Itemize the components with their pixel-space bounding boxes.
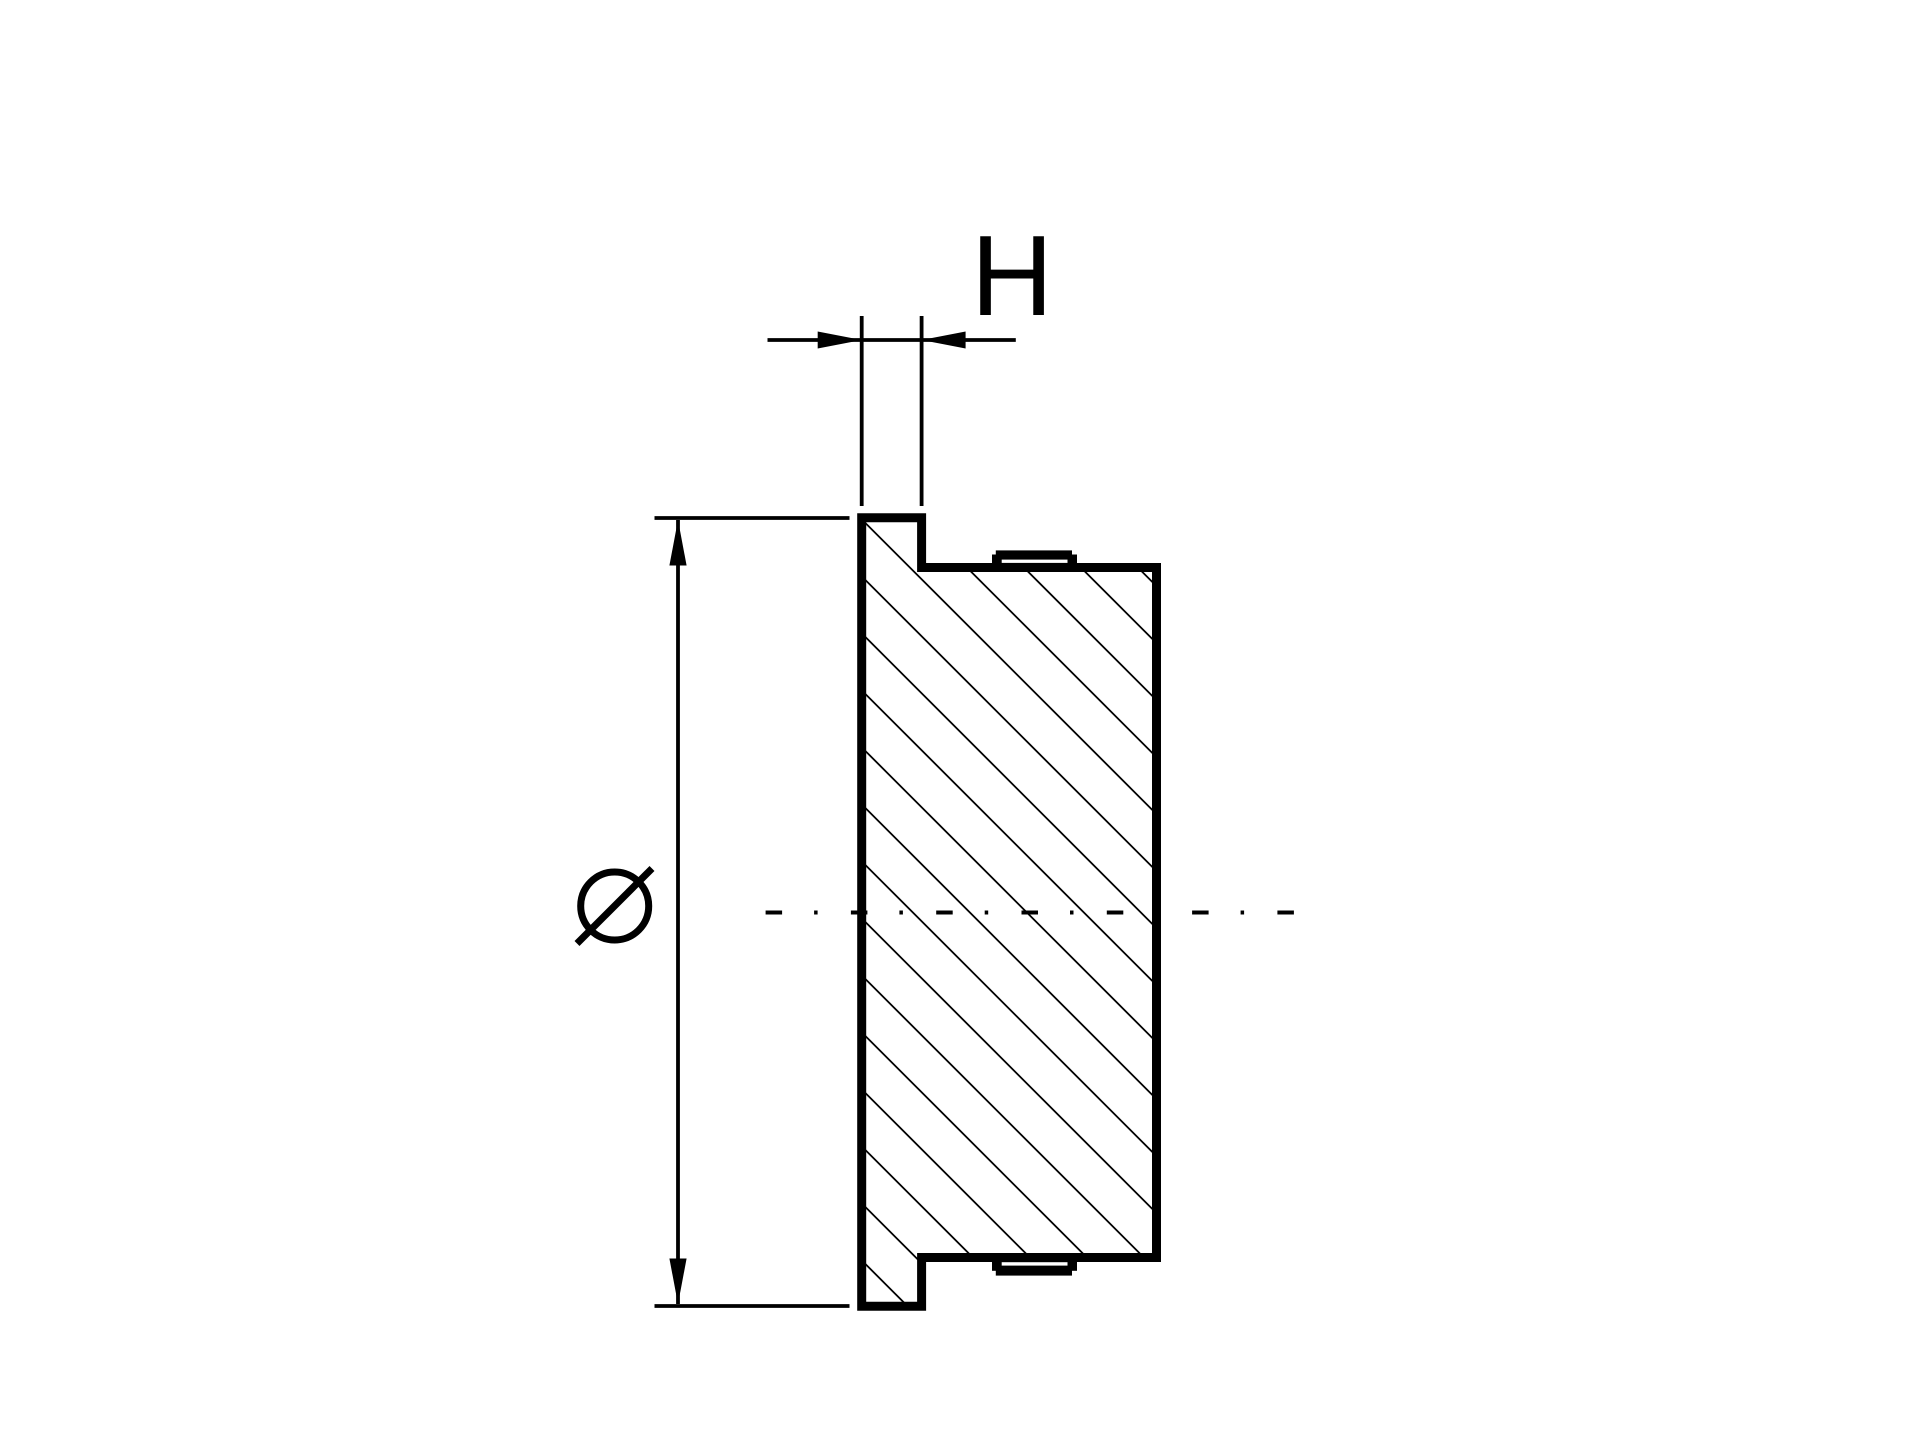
svg-text:H: H [971,213,1053,340]
